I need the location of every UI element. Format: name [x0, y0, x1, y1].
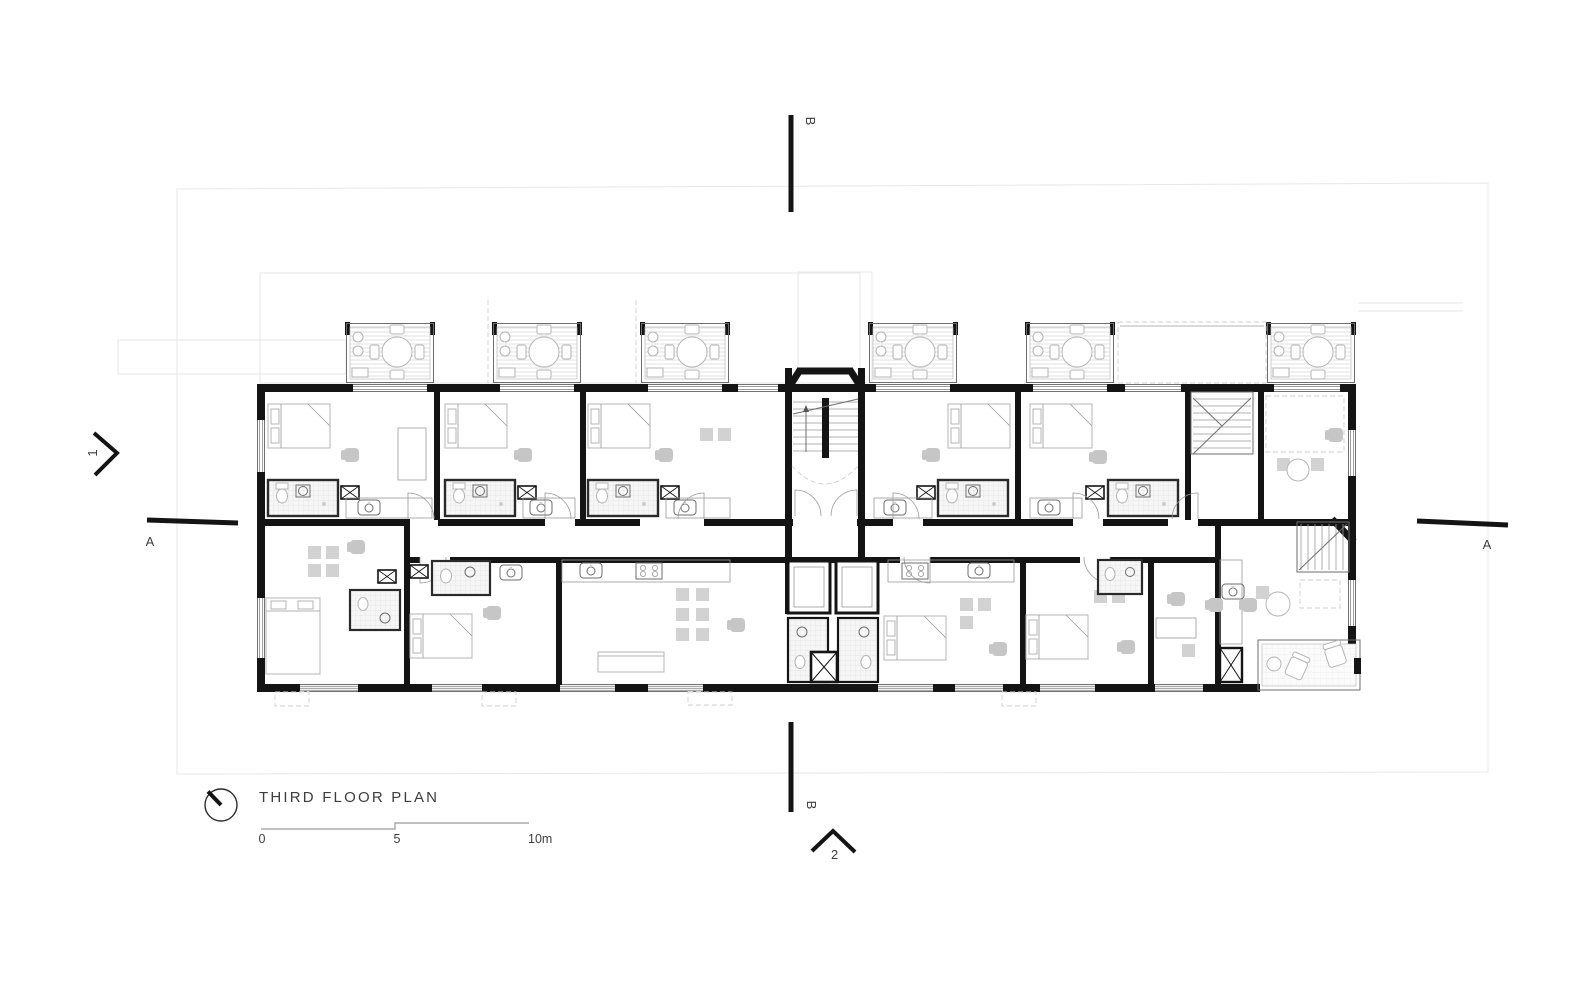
- apartment-top-3: [588, 404, 731, 519]
- plan-title: THIRD FLOOR PLAN: [259, 789, 439, 806]
- north-arrow-icon: [205, 789, 237, 821]
- floor-plan-drawing: B B A A 1 2 THIRD FLOOR PLAN 0 5 10m: [0, 0, 1582, 989]
- apartment-bottom-6: [1156, 592, 1196, 657]
- section-marker-b-top: B: [791, 115, 818, 212]
- apartment-bottom-3: [562, 560, 745, 672]
- scale-tick-0: 0: [259, 832, 266, 846]
- elevation-arrow-2: 2: [812, 831, 855, 862]
- apartment-bottom-5: [1026, 560, 1142, 659]
- title-block: THIRD FLOOR PLAN 0 5 10m: [205, 789, 552, 846]
- section-label-b-bottom: B: [804, 801, 819, 810]
- section-marker-b-bottom: B: [791, 722, 819, 812]
- elevation-label-2: 2: [831, 847, 838, 862]
- elevation-arrow-1: 1: [85, 433, 117, 475]
- elevation-label-1: 1: [85, 449, 100, 456]
- apartment-bottom-1: [266, 540, 400, 674]
- apartment-bottom-2: [410, 561, 522, 658]
- apartment-top-2: [445, 404, 575, 519]
- scale-tick-10: 10m: [528, 832, 552, 846]
- apartment-bottom-4: [884, 560, 1014, 660]
- entry-porches: [275, 692, 1036, 706]
- section-marker-a-left: A: [146, 520, 238, 549]
- architectural-sheet: B B A A 1 2 THIRD FLOOR PLAN 0 5 10m: [0, 0, 1582, 989]
- apartment-top-5: [1030, 404, 1178, 519]
- section-label-a-left: A: [146, 534, 155, 549]
- section-label-b-top: B: [803, 117, 818, 126]
- lower-terrace: [1258, 640, 1361, 690]
- apartment-top-1: [268, 404, 434, 519]
- scale-bar: 0 5 10m: [259, 823, 553, 846]
- apartment-top-4: [874, 404, 1010, 519]
- scale-tick-5: 5: [394, 832, 401, 846]
- section-label-a-right: A: [1483, 537, 1492, 552]
- secondary-stair: [1191, 392, 1253, 454]
- open-terrace: [1118, 322, 1266, 383]
- section-marker-a-right: A: [1417, 521, 1508, 552]
